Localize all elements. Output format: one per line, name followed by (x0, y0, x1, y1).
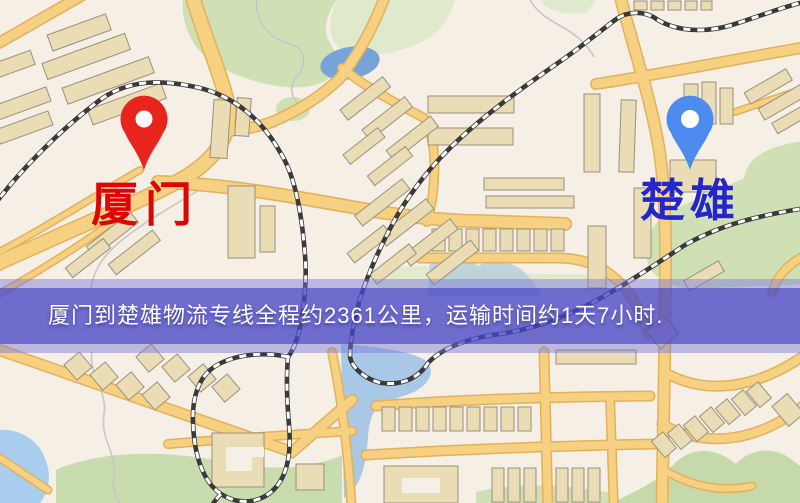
destination-pin-icon[interactable] (667, 96, 714, 170)
destination-city-label: 楚雄 (640, 178, 740, 223)
origin-pin-icon[interactable] (120, 96, 167, 170)
origin-city-label: 厦门 (91, 181, 199, 228)
logistics-route-map: 厦门 楚雄 厦门到楚雄物流专线全程约2361公里，运输时间约1天7小时. (0, 0, 800, 503)
map-canvas (0, 0, 800, 503)
route-info-banner: 厦门到楚雄物流专线全程约2361公里，运输时间约1天7小时. (0, 288, 800, 344)
route-info-text: 厦门到楚雄物流专线全程约2361公里，运输时间约1天7小时. (0, 288, 800, 344)
